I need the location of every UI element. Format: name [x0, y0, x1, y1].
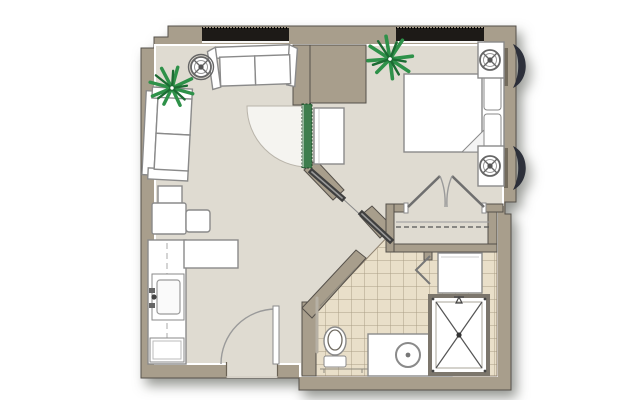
table-lamp-icon: [480, 50, 500, 70]
wall-chase: [310, 45, 366, 103]
closet-jamb-left: [404, 203, 408, 213]
window-living: [202, 28, 289, 41]
linen-cabinet: [438, 253, 482, 293]
toilet: [324, 327, 346, 367]
shower-with-x: [430, 296, 488, 374]
closet-bath-divider-wall: [394, 244, 497, 252]
ottoman: [186, 210, 210, 232]
closet-west-wall: [386, 204, 394, 252]
loveseat-cushion: [156, 97, 192, 135]
faucet-icon: [151, 294, 156, 299]
table-lamp-icon: [480, 156, 500, 176]
mattress: [404, 74, 484, 152]
floor-plan-drawing: [0, 0, 640, 400]
loveseat-cushion: [154, 133, 190, 171]
sofa: [207, 44, 298, 89]
bed: [404, 70, 504, 156]
sofa-cushion: [220, 56, 256, 86]
closet-east-wall: [488, 212, 497, 246]
toilet-tank: [324, 356, 346, 367]
closet-front-wall-right: [484, 204, 503, 212]
kitchen-peninsula: [184, 240, 238, 268]
sink-basin: [157, 280, 180, 314]
apartment-plan: [141, 26, 526, 390]
floor-plan-canvas: [0, 0, 640, 400]
entry-door-leaf: [273, 306, 279, 364]
pillow: [484, 76, 501, 110]
window-living-sill: [202, 41, 289, 43]
side-table: [158, 186, 182, 204]
kitchen-appliance: [150, 338, 184, 362]
window-bedroom: [396, 28, 484, 41]
toilet-bowl: [324, 327, 346, 355]
pillow: [484, 114, 501, 148]
sofa-cushion: [255, 55, 291, 85]
floor-lamp-icon: [191, 57, 211, 77]
shower-drain: [456, 332, 461, 337]
armchair: [152, 203, 186, 234]
window-bedroom-sill: [396, 41, 484, 43]
